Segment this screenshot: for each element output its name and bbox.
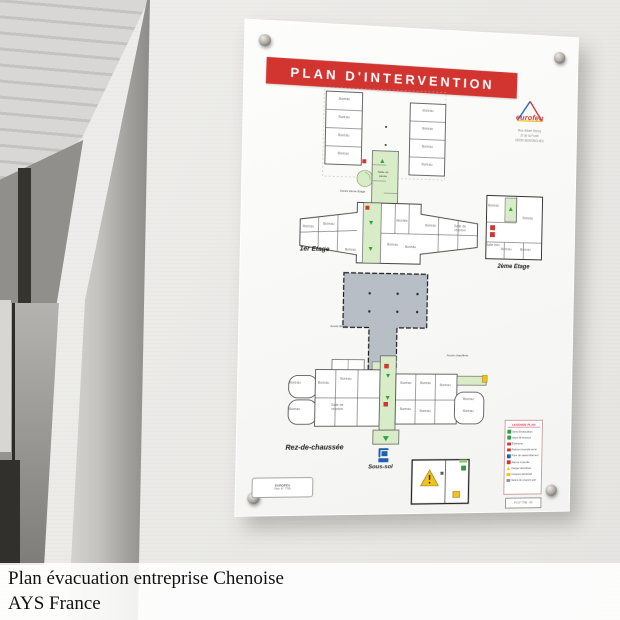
extinguisher-icon bbox=[365, 206, 369, 210]
room-label: Bureau bbox=[286, 408, 302, 412]
exit-door-icon bbox=[459, 460, 467, 463]
floor-plan-etage2: Bureau Bureau Salle info Bureau Bureau 2… bbox=[482, 192, 545, 274]
legend-swatch-icon bbox=[507, 473, 511, 477]
floor-label-soussol: Sous-sol bbox=[368, 464, 393, 470]
legend-box: LEGENDE PLAN Sens d'évacuationIssue de s… bbox=[503, 420, 543, 495]
legend-label: Extincteur bbox=[512, 442, 523, 445]
ria-icon bbox=[490, 225, 495, 230]
legend-label: Alarme incendie bbox=[512, 461, 530, 464]
exit-icon bbox=[461, 466, 466, 471]
legend-title: LEGENDE PLAN bbox=[507, 422, 540, 427]
room-label: Bureau bbox=[460, 410, 476, 414]
evacuation-plan-board: PLAN D'INTERVENTION eurofeu Rue Albert R… bbox=[234, 19, 579, 517]
pause-room-label: Salle de pause bbox=[374, 171, 392, 179]
room-label: Bureau bbox=[336, 134, 352, 138]
assembly-point-sign-icon bbox=[378, 448, 388, 463]
legend-label: Robinet incendie armé bbox=[512, 448, 537, 451]
room-label: Bureau bbox=[342, 248, 358, 252]
logo-address: Rue Albert Rémy ZI de la Forêt 28250 SEN… bbox=[502, 128, 556, 144]
legend-items: Sens d'évacuationIssue de secoursExtinct… bbox=[506, 429, 540, 484]
room-label: Bureau bbox=[336, 98, 352, 102]
legend-label: Issue de secours bbox=[512, 436, 531, 439]
floor-plan-soussol: Sous-sol bbox=[409, 458, 473, 508]
cut-off-icon bbox=[453, 491, 460, 497]
extinguisher-icon bbox=[362, 159, 366, 163]
room-label: Bureau bbox=[461, 398, 477, 402]
plan-reference-box: EUROFEU Plan N° 7789 bbox=[251, 477, 313, 498]
legend-reference: PI CF 7789 - 09 bbox=[505, 497, 542, 508]
white-door-edge bbox=[0, 300, 11, 452]
legend-label: Danger électrique bbox=[511, 467, 531, 470]
caption-subtitle: AYS France bbox=[8, 592, 612, 617]
room-label: Bureau bbox=[338, 378, 354, 382]
extinguisher-icon bbox=[384, 364, 389, 369]
hallway-shadow bbox=[0, 460, 20, 565]
plan-title: PLAN D'INTERVENTION bbox=[290, 64, 494, 92]
room-label: Bureau bbox=[486, 204, 502, 208]
legend-swatch-icon bbox=[507, 454, 511, 458]
eurofeu-logo: eurofeu Rue Albert Rémy ZI de la Forêt 2… bbox=[502, 98, 557, 169]
room-label: Bureau bbox=[420, 109, 436, 113]
access-etage-label: Accès Etage bbox=[327, 325, 351, 329]
hallway-doorway bbox=[18, 168, 31, 304]
room-label: Bureau bbox=[437, 384, 453, 388]
room-label: Bureau bbox=[403, 246, 419, 250]
room-label: Bureau bbox=[336, 116, 352, 120]
room-label: Salle de réunion bbox=[450, 225, 470, 233]
floor-plan-etage1: Bureau Bureau Montée Bureau Salle de réu… bbox=[297, 188, 480, 267]
photo-scene: PLAN D'INTERVENTION eurofeu Rue Albert R… bbox=[0, 0, 620, 620]
room-label: Bureau bbox=[498, 248, 513, 252]
room-label: Bureau bbox=[398, 382, 414, 386]
access-chaufferie-label: Accès chaufferie bbox=[444, 354, 471, 358]
room-label: Bureau bbox=[518, 249, 533, 253]
room-label: Bureau bbox=[417, 410, 433, 414]
legend-swatch-icon bbox=[507, 430, 511, 434]
floor-label-etage2: 2ème Etage bbox=[490, 264, 536, 271]
legend-swatch-icon bbox=[507, 442, 511, 446]
room-label: Bureau bbox=[321, 223, 337, 227]
standoff-screw-bottom-right bbox=[545, 484, 557, 496]
standoff-screw-top-right bbox=[554, 52, 566, 64]
legend-swatch-icon bbox=[507, 448, 511, 452]
room-label: Bureau bbox=[287, 382, 303, 386]
logo-address-line: 28250 SENONCHES bbox=[502, 137, 556, 144]
legend-swatch-icon bbox=[506, 479, 510, 483]
floor-label-etage1: 1er Etage bbox=[300, 245, 330, 253]
legend-row: Vanne de coupure gaz bbox=[506, 477, 539, 483]
room-label: Bureau bbox=[418, 382, 434, 386]
room-label: Bureau bbox=[419, 145, 435, 149]
legend-label: Vanne de coupure gaz bbox=[511, 479, 536, 482]
room-label: Bureau bbox=[300, 225, 316, 229]
room-label: Bureau bbox=[419, 163, 435, 167]
extinguisher-icon bbox=[490, 232, 495, 237]
legend-label: Point de rassemblement bbox=[512, 454, 539, 457]
extinguisher-icon bbox=[383, 402, 388, 407]
legend-label: Coupure électricité bbox=[511, 473, 532, 476]
floor-label-rdc: Rez-de-chaussée bbox=[285, 444, 343, 451]
room-label: Bureau bbox=[315, 382, 331, 386]
photo-caption: Plan évacuation entreprise Chenoise AYS … bbox=[0, 563, 620, 620]
room-label: Bureau bbox=[335, 152, 351, 156]
legend-swatch-icon bbox=[507, 436, 511, 440]
caption-title: Plan évacuation entreprise Chenoise bbox=[8, 567, 612, 592]
room-label: Bureau bbox=[423, 224, 439, 228]
legend-swatch-icon bbox=[507, 460, 511, 464]
room-label: Bureau bbox=[397, 408, 413, 412]
room-label: Bureau bbox=[385, 243, 401, 247]
hazard-icon bbox=[482, 375, 487, 382]
room-label: Salle de réunion bbox=[327, 404, 347, 412]
room-label: Bureau bbox=[420, 127, 436, 131]
room-label: Bureau bbox=[520, 217, 535, 221]
reference-line: Plan N° 7789 bbox=[274, 488, 290, 492]
room-label: Montée bbox=[394, 220, 410, 224]
legend-label: Sens d'évacuation bbox=[512, 430, 532, 433]
standoff-screw-top-left bbox=[258, 34, 271, 47]
legend-swatch-icon bbox=[507, 467, 511, 471]
